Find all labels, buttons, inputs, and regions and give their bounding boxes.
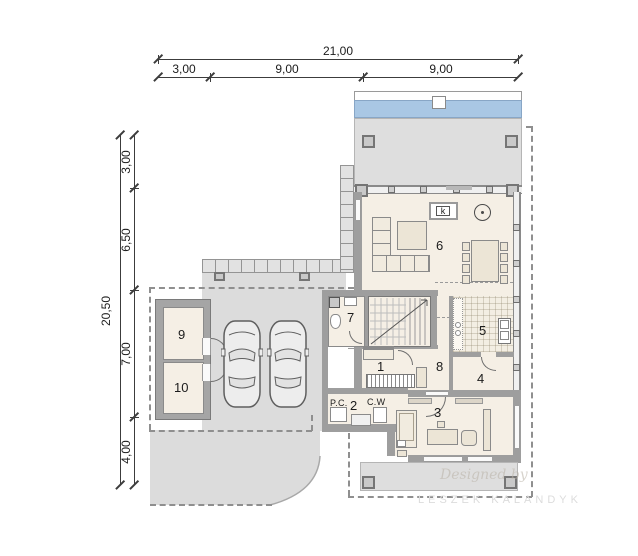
watermark-script: Designed by	[440, 467, 528, 483]
plot-boundary	[311, 415, 313, 431]
room-label-5: 5	[479, 323, 486, 338]
boiler-unit	[330, 407, 347, 422]
chair	[500, 253, 508, 262]
driveway	[150, 430, 321, 506]
room-label-10: 10	[174, 380, 188, 395]
shower	[329, 297, 340, 308]
round-table-center	[481, 211, 484, 214]
dim-ext	[130, 290, 139, 291]
nightstand	[397, 450, 407, 457]
room-label-3: 3	[434, 405, 441, 420]
wall-kitchen-pantry	[496, 352, 514, 357]
dim-label-seg: 9,00	[411, 62, 471, 76]
north-glazed-wall	[354, 185, 522, 194]
dim-line-top-segments	[158, 77, 518, 78]
wardrobe	[366, 374, 415, 388]
dim-ext	[363, 73, 364, 82]
wall-room1-left	[354, 347, 362, 389]
plot-boundary	[150, 504, 272, 506]
shelf	[455, 398, 483, 404]
door-opening	[426, 391, 448, 396]
room-label-6: 6	[436, 238, 443, 253]
chair	[500, 264, 508, 273]
terrace-column	[362, 476, 375, 489]
sink-bowl	[455, 330, 461, 336]
dim-ext	[518, 55, 519, 64]
carport-post	[214, 272, 225, 281]
watermark-studio: LESZEK KALANDYK	[418, 494, 582, 506]
pergola-blocks-row	[202, 259, 354, 273]
fireplace-symbol: k	[436, 206, 450, 216]
window-sill	[446, 186, 472, 190]
mullion	[513, 224, 520, 231]
plot-boundary	[149, 430, 312, 432]
dim-ext	[130, 417, 139, 418]
terrace-column	[505, 135, 518, 148]
floor-plan-canvas: 21,00 3,00 9,00 9,00 20,50 3,00 6,50 7,0…	[0, 0, 638, 556]
stove-burner	[500, 331, 509, 340]
room-label-9: 9	[178, 327, 185, 342]
room-label-7: 7	[347, 310, 354, 325]
mullion	[513, 330, 520, 337]
car-icon	[221, 319, 263, 409]
dim-line-top-total	[158, 59, 518, 60]
mullion	[513, 260, 520, 267]
carport-post	[299, 272, 310, 281]
mullion	[420, 186, 427, 193]
chair	[500, 275, 508, 284]
pergola-blocks-column	[340, 165, 354, 273]
upper-terrace	[354, 118, 522, 188]
mullion	[486, 186, 493, 193]
window-opening	[514, 406, 520, 448]
dim-label-seg: 7,00	[119, 326, 133, 382]
chair	[500, 242, 508, 251]
door-opening	[202, 338, 211, 355]
mullion	[388, 186, 395, 193]
plot-boundary	[348, 433, 350, 496]
chair	[462, 253, 470, 262]
dim-label-total-width: 21,00	[308, 44, 368, 58]
dim-label-seg: 6,50	[119, 212, 133, 268]
desk-chair	[437, 421, 445, 428]
sink	[344, 297, 357, 306]
bed-mattress	[399, 413, 414, 441]
room-label-2: 2	[350, 398, 357, 413]
room-label-4: 4	[477, 371, 484, 386]
chair	[462, 264, 470, 273]
dim-label-seg: 9,00	[257, 62, 317, 76]
east-glazed-wall	[513, 192, 521, 390]
dim-label-seg: 4,00	[119, 424, 133, 480]
water-heater-label: C.W	[367, 397, 385, 407]
plot-boundary	[531, 126, 533, 497]
terrace-column	[362, 135, 375, 148]
mullion	[513, 296, 520, 303]
dim-label-seg: 3,00	[119, 134, 133, 190]
stove-burner	[500, 320, 509, 329]
staircase	[368, 296, 431, 347]
entry-step	[351, 414, 371, 426]
desk	[427, 429, 458, 445]
dim-label-total-height: 20,50	[99, 283, 113, 339]
room-label-8: 8	[436, 359, 443, 374]
room-label-1: 1	[377, 359, 384, 374]
water-heater-unit	[373, 407, 387, 423]
chair	[462, 242, 470, 251]
dim-label-seg: 3,00	[154, 62, 214, 76]
plot-boundary	[149, 287, 151, 430]
chimney	[432, 96, 446, 109]
car-icon	[267, 319, 309, 409]
armchair	[461, 430, 477, 446]
cabinet	[416, 367, 427, 388]
window-opening	[355, 200, 361, 220]
wall-hall-room3	[408, 390, 521, 397]
door-opening	[202, 364, 211, 381]
mullion	[513, 364, 520, 371]
coffee-table	[397, 221, 427, 250]
wall-stairs-hall	[431, 296, 437, 348]
dining-table	[471, 240, 499, 282]
sofa-horizontal	[372, 255, 430, 272]
sink-bowl	[455, 322, 461, 328]
chair	[462, 275, 470, 284]
wardrobe-tall	[483, 409, 491, 451]
pillow	[397, 440, 406, 447]
plot-boundary	[149, 287, 354, 289]
toilet	[330, 314, 341, 329]
hall-bench	[363, 346, 394, 360]
shelf	[408, 398, 432, 404]
wall-kitchen-pantry	[453, 352, 481, 357]
